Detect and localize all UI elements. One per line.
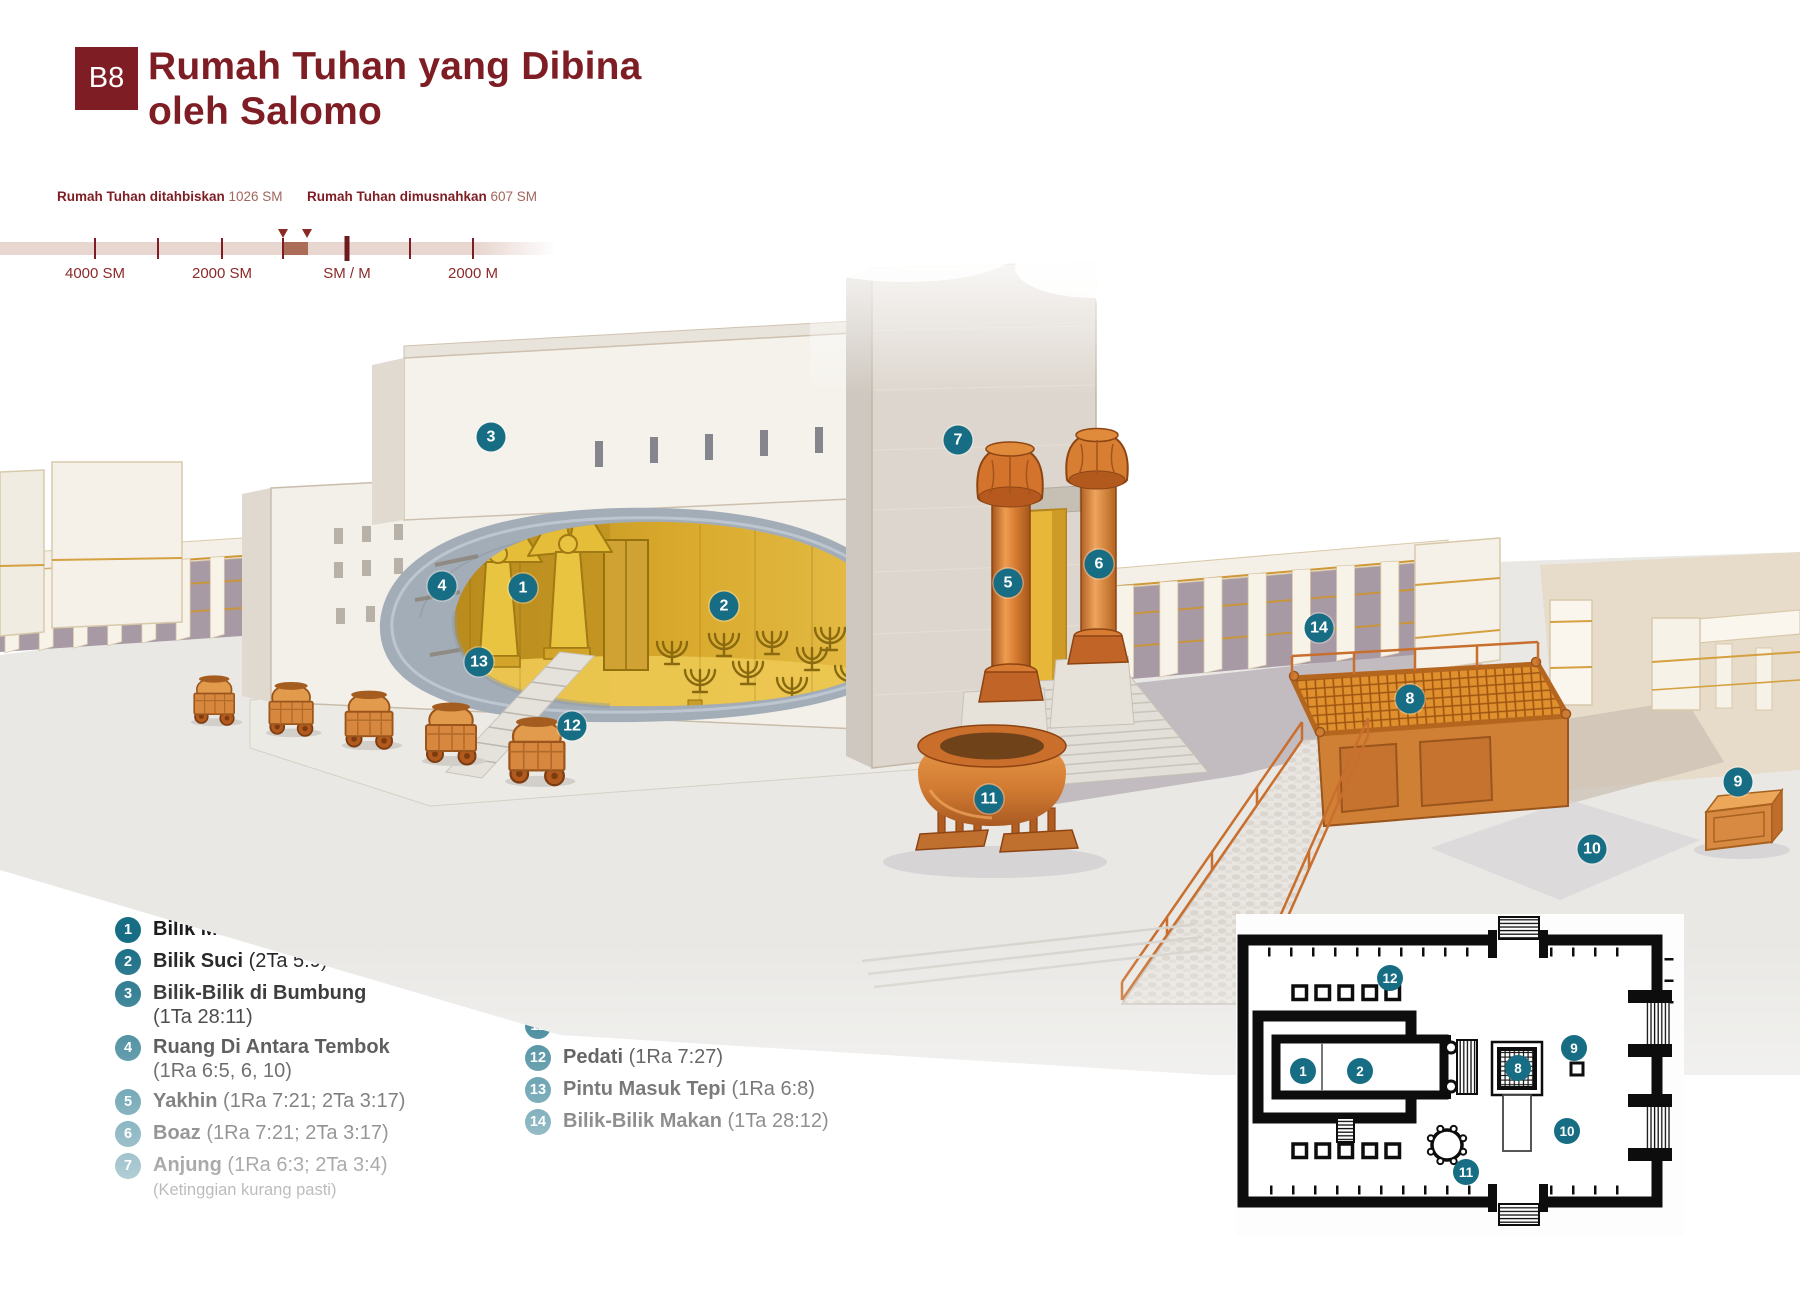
svg-text:12: 12 (1382, 971, 1397, 986)
plan-pillar-boaz (1446, 1081, 1457, 1092)
plan-temple-stairs (1337, 1118, 1354, 1142)
temple-floor-plan: 1289101112 (1236, 914, 1684, 1236)
diagram-marker-11: 11 (975, 785, 1004, 814)
diagram-marker-4: 4 (428, 572, 457, 601)
plan-platform (1571, 1063, 1583, 1075)
diagram-marker-7: 7 (944, 426, 973, 455)
diagram-marker-12: 12 (558, 712, 587, 741)
svg-text:1: 1 (1299, 1064, 1307, 1079)
diagram-marker-10: 10 (1578, 835, 1607, 864)
svg-text:10: 10 (1559, 1124, 1574, 1139)
plan-pillar-yakhin (1446, 1042, 1457, 1053)
plan-porch-steps (1457, 1040, 1477, 1094)
diagram-marker-6: 6 (1085, 550, 1114, 579)
diagram-marker-13: 13 (465, 648, 494, 677)
diagram-marker-3: 3 (477, 423, 506, 452)
svg-text:2: 2 (1356, 1064, 1364, 1079)
diagram-marker-1: 1 (509, 574, 538, 603)
svg-text:8: 8 (1514, 1061, 1522, 1076)
diagram-marker-9: 9 (1724, 768, 1753, 797)
svg-text:9: 9 (1570, 1041, 1578, 1056)
diagram-marker-2: 2 (710, 592, 739, 621)
diagram-marker-5: 5 (994, 569, 1023, 598)
diagram-marker-8: 8 (1396, 685, 1425, 714)
roof-chambers (372, 320, 872, 525)
svg-text:11: 11 (1459, 1165, 1474, 1180)
plan-altar-ramp (1503, 1095, 1531, 1151)
diagram-marker-14: 14 (1305, 614, 1334, 643)
